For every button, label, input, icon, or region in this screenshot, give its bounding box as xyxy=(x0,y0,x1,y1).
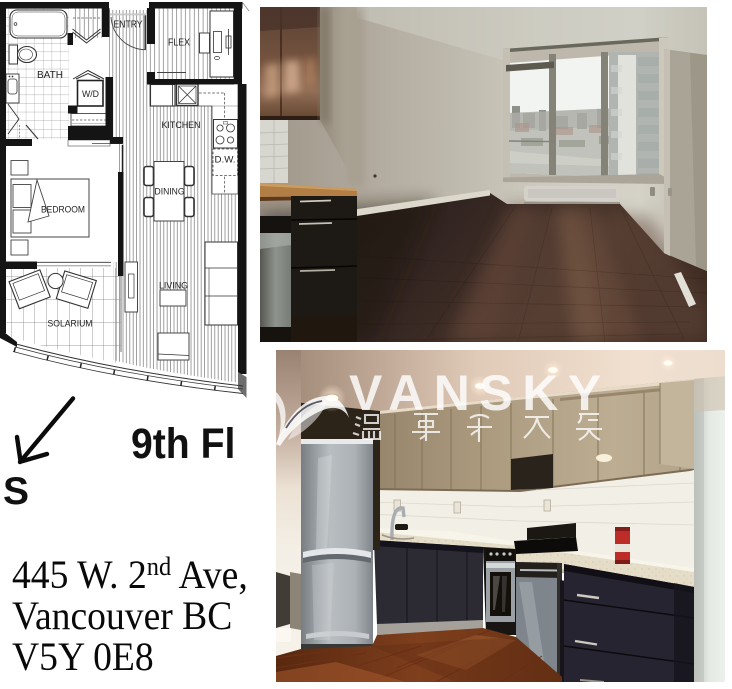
svg-text:DINING: DINING xyxy=(155,187,185,198)
svg-text:D.W.: D.W. xyxy=(215,155,236,165)
svg-text:W/D: W/D xyxy=(82,89,99,99)
svg-text:BEDROOM: BEDROOM xyxy=(41,205,85,216)
svg-text:BATH: BATH xyxy=(37,70,63,81)
svg-text:LIVING: LIVING xyxy=(159,281,188,292)
svg-text:KITCHEN: KITCHEN xyxy=(162,120,201,131)
svg-text:FLEX: FLEX xyxy=(168,38,190,49)
svg-text:SOLARIUM: SOLARIUM xyxy=(48,319,93,330)
svg-text:ENTRY: ENTRY xyxy=(114,20,143,31)
svg-text:VANSKY: VANSKY xyxy=(349,365,611,421)
